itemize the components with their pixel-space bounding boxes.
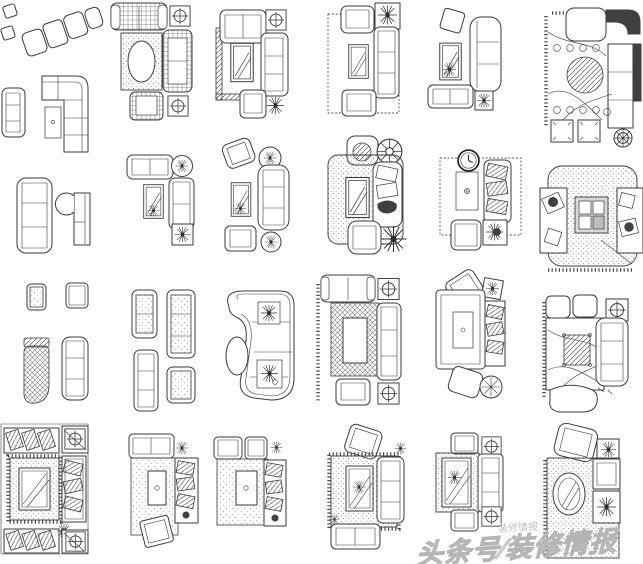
mirror-table-icon (231, 43, 253, 81)
furniture-block-angled-chairs (0, 3, 106, 57)
furniture-block-clock-set (440, 150, 521, 250)
furniture-block-dotted-rug-set (329, 423, 406, 549)
furniture-block-floral-rug-set (318, 275, 401, 405)
furniture-block-twin-armchair-set (214, 437, 286, 526)
furniture-block-square-rug-lounge (540, 166, 643, 266)
plant-icon (597, 498, 616, 517)
crosshair-table-icon (482, 437, 501, 456)
furniture-block-dashed-rug-set (328, 3, 400, 116)
furniture-block-singles (24, 283, 88, 403)
furniture-block-plaid-set (111, 3, 192, 120)
mirror-table-icon (349, 45, 369, 79)
crosshair-table-icon (66, 532, 85, 551)
plant-icon (380, 226, 406, 252)
plant-icon (486, 282, 500, 296)
plant-icon (271, 442, 283, 454)
plant-icon (378, 6, 397, 25)
mirror-table-icon (440, 43, 461, 80)
furniture-block-luxury-corner (546, 8, 641, 147)
plant-icon (353, 481, 366, 494)
plant-icon (235, 203, 247, 215)
clock-icon (458, 150, 479, 171)
furniture-block-compact-set (127, 155, 194, 245)
furniture-blocks-sheet: 装修情报 头条号∕装修情报 (0, 0, 643, 564)
plant-icon (264, 152, 277, 165)
plant-icon (176, 160, 189, 173)
crosshair-table-icon (378, 278, 399, 299)
crosshair-table-icon (170, 6, 190, 26)
furniture-block-p-sofa (226, 291, 294, 400)
plant-icon (261, 305, 277, 321)
plant-icon (148, 205, 160, 217)
furniture-block-round-tables-set (221, 137, 289, 252)
furniture-block-tufted-group (132, 290, 195, 411)
caster-wheel-icon (614, 129, 632, 147)
plant-icon (176, 442, 189, 455)
furniture-block-straight-sofa-chaise (17, 178, 90, 253)
furniture-block-stipple-fan-set (328, 136, 407, 254)
furniture-block-ornate-square (1, 424, 88, 554)
plant-icon (477, 93, 491, 107)
plant-icon (443, 63, 457, 77)
crosshair-table-icon (378, 383, 399, 404)
furniture-block-luxury-oval-lounge (545, 422, 620, 558)
plant-icon (448, 471, 462, 485)
furniture-block-chaise-group (428, 8, 501, 110)
plant-icon (175, 227, 190, 242)
crosshair-table-icon (266, 10, 286, 30)
furniture-block-mirror-set (216, 10, 288, 118)
plant-icon (267, 97, 284, 114)
plant-icon (395, 443, 407, 455)
cad-canvas (0, 0, 643, 564)
furniture-block-symmetric-set (436, 433, 503, 531)
mirror-table-icon (346, 178, 369, 218)
crosshair-table-icon (168, 96, 188, 116)
plant-icon (601, 442, 616, 457)
furniture-block-round-end-set (436, 267, 505, 399)
furniture-block-l-sofa (2, 76, 88, 152)
furniture-block-tilted-table-set (129, 434, 198, 548)
crosshair-table-icon (482, 507, 501, 526)
plant-icon (265, 236, 278, 249)
mirror-table-icon (231, 183, 251, 217)
plant-icon (330, 515, 340, 525)
furniture-block-corner-lounge (544, 270, 634, 412)
